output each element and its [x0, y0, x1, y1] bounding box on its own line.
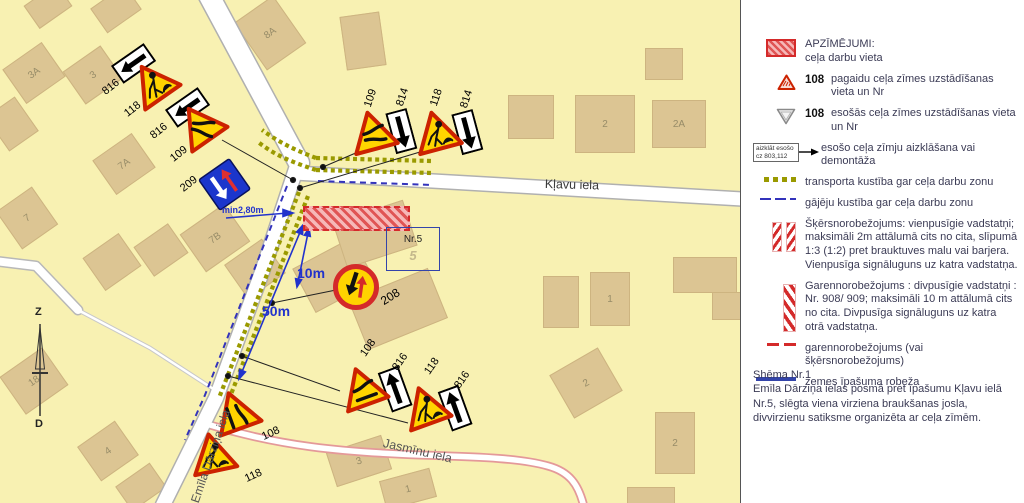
- property-nr5-boundary: Nr.5 5: [386, 227, 440, 271]
- legend-item-text: esošo ceļa zīmju aizklāšana vai demontāž…: [821, 142, 1024, 170]
- legend-item-transport: transporta kustība gar ceļa darbu zonu: [741, 176, 1024, 190]
- legend-sign-nr: 108: [805, 73, 831, 86]
- legend-item-pedestrian: gājēju kustība gar ceļa darbu zonu: [741, 197, 1024, 211]
- cover-arrow-icon: [799, 147, 819, 157]
- legend-item-text: transporta kustība gar ceļa darbu zonu: [805, 176, 1024, 190]
- legend-item-cover-existing: aizklāt esošo cz 803,112 esošo ceļa zīmj…: [743, 142, 1024, 170]
- compass-north-label: Z: [35, 306, 42, 318]
- scheme-note: Shēma Nr.1 Emīla Dārziņa ielas posmā pre…: [753, 368, 1015, 425]
- min-width-annotation: min2,80m: [222, 205, 264, 215]
- legend-sign-nr: 108: [805, 107, 831, 120]
- existing-sign-triangle-icon: [776, 108, 796, 125]
- legend-item-text: Šķērsnorobežojums: vienpusīgie vadstatņi…: [805, 218, 1024, 273]
- legend-item-text: pagaidu ceļa zīmes uzstādīšanas vieta un…: [831, 73, 1024, 101]
- legend-title: APZĪMĒJUMI:: [805, 38, 1018, 52]
- legend-item-long-barrier: Garennorobežojums : divpusīgie vadstatņi…: [741, 280, 1024, 335]
- road-casings: [0, 0, 740, 503]
- work-zone-swatch-icon: [766, 39, 796, 57]
- legend-item-temp-sign: 108 pagaidu ceļa zīmes uzstādīšanas viet…: [741, 73, 1024, 101]
- legend-panel: APZĪMĒJUMI: ceļa darbu vieta 108 pagaidu…: [740, 0, 1024, 503]
- scheme-note-body: Emīla Dārziņa ielas posmā pret īpašumu K…: [753, 382, 1015, 425]
- compass: [32, 324, 48, 416]
- property-label: Nr.5: [387, 234, 439, 245]
- legend-item-text: ceļa darbu vieta: [805, 52, 1018, 66]
- roadworks-scheme: 3A 3 8A 7A 7 7B 18 4 3 1 2 2A 1 2 2: [0, 0, 1024, 503]
- scheme-note-title: Shēma Nr.1: [753, 368, 1015, 382]
- legend-item-text: esošās ceļa zīmes uzstādīšanas vieta un …: [831, 107, 1024, 135]
- road-surfaces: [0, 0, 740, 503]
- sign-208-give-way-oncoming: [332, 263, 380, 316]
- temp-sign-triangle-icon: [777, 74, 796, 91]
- street-name-klavu: Kļavu iela: [545, 177, 600, 192]
- legend-item-work-zone: APZĪMĒJUMI: ceļa darbu vieta: [741, 38, 1024, 66]
- legend-item-text: gājēju kustība gar ceļa darbu zonu: [805, 197, 1024, 211]
- cross-barrier-stripes-icon: [741, 218, 805, 252]
- compass-south-label: D: [35, 418, 43, 430]
- map-vector-layer: [0, 0, 740, 503]
- legend-item-long-barrier-line: garennorobežojums (vai šķērsnorobežojums…: [741, 342, 1024, 370]
- long-barrier-stripes-icon: [741, 280, 805, 332]
- transport-dots-icon: [741, 176, 805, 182]
- dimension-50m-label: 50m: [262, 303, 290, 319]
- legend-item-existing-sign: 108 esošās ceļa zīmes uzstādīšanas vieta…: [741, 107, 1024, 135]
- map-canvas: 3A 3 8A 7A 7 7B 18 4 3 1 2 2A 1 2 2: [0, 0, 740, 503]
- cover-box-icon: aizklāt esošo cz 803,112: [753, 143, 799, 162]
- red-dashes-icon: [741, 342, 805, 346]
- dimension-10m-label: 10m: [297, 265, 325, 281]
- legend-item-cross-barrier: Šķērsnorobežojums: vienpusīgie vadstatņi…: [741, 218, 1024, 273]
- pedestrian-dashes-icon: [741, 197, 805, 201]
- plot-number: 5: [387, 248, 439, 263]
- legend-item-text: garennorobežojums (vai šķērsnorobežojums…: [805, 342, 1024, 370]
- legend-item-text: Garennorobežojums : divpusīgie vadstatņi…: [805, 280, 1024, 335]
